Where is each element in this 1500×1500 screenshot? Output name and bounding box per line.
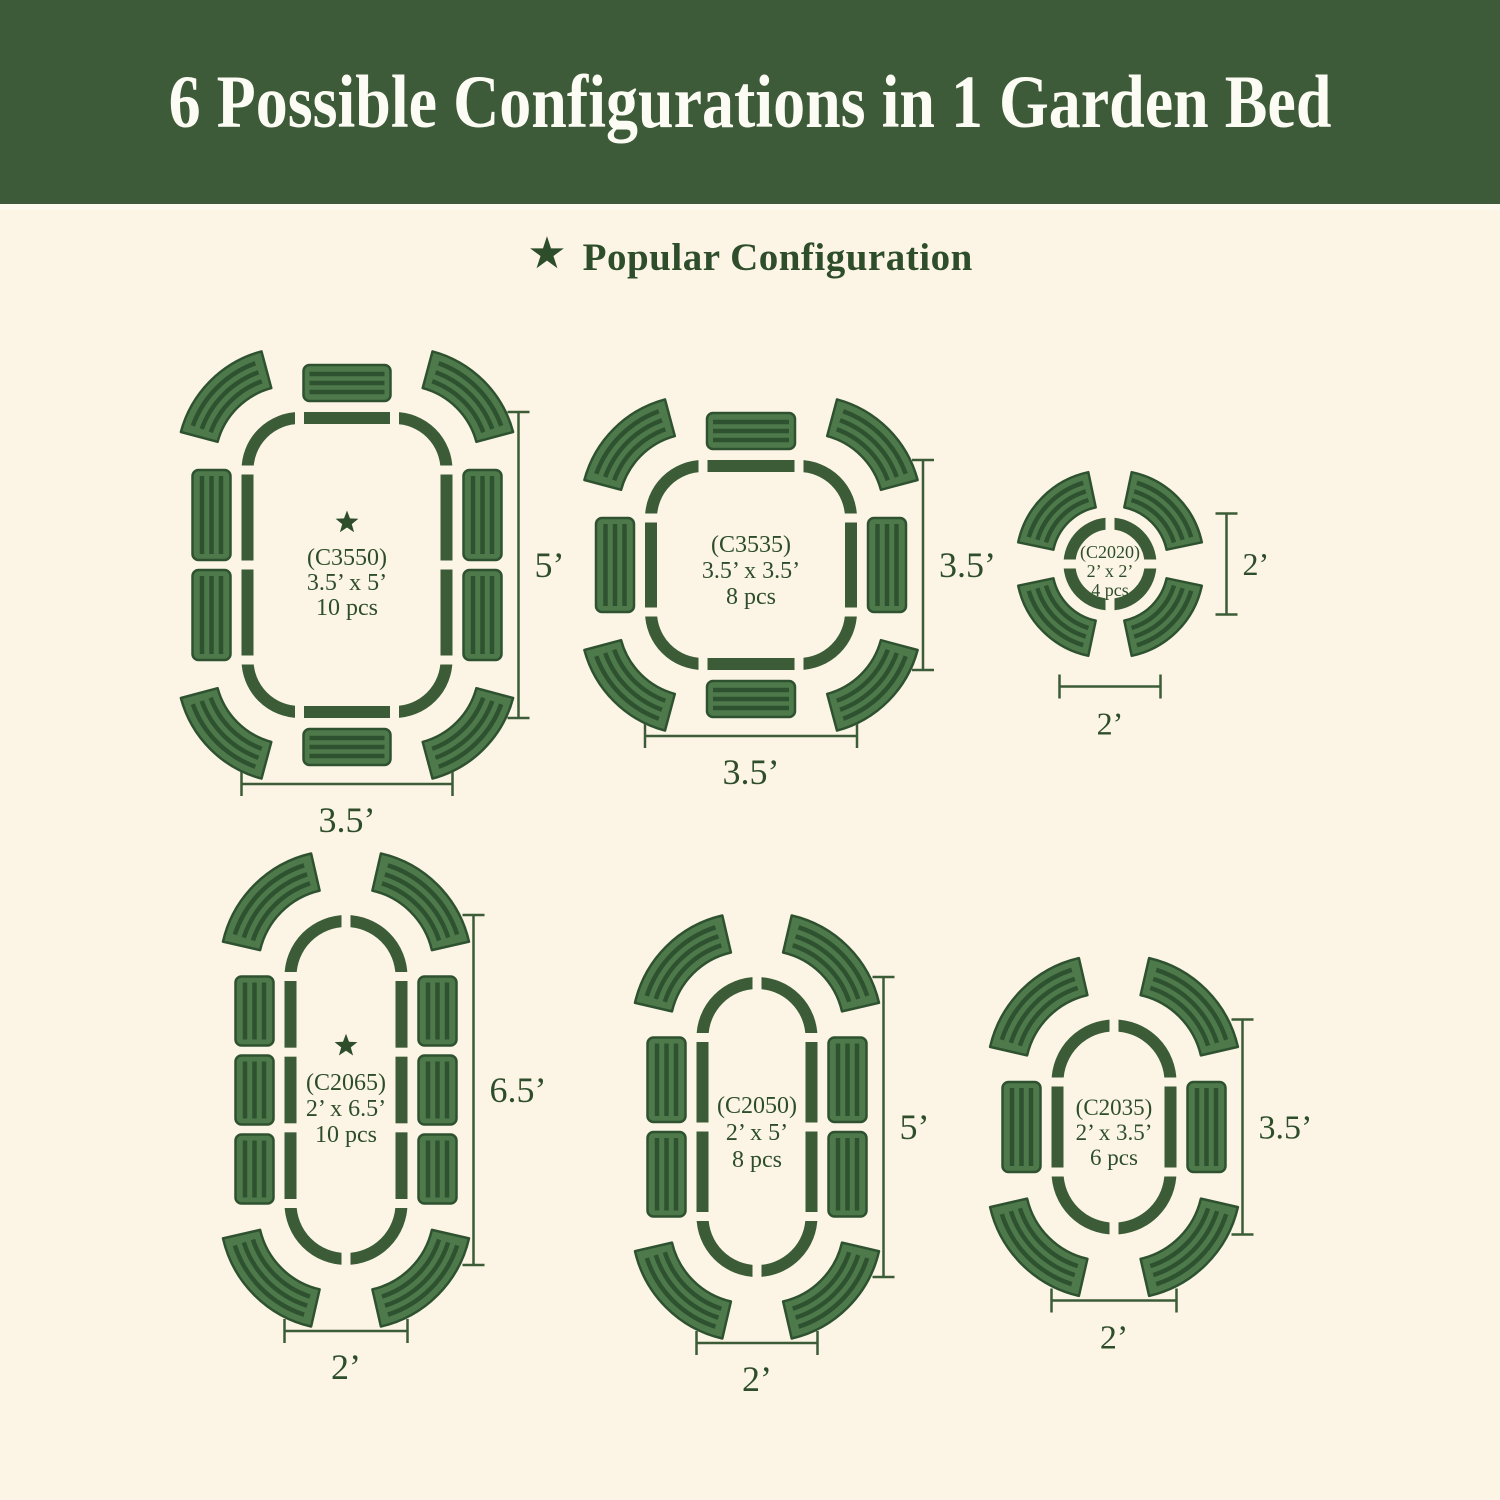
piece-joint-gap — [690, 1033, 716, 1042]
config-label: (C2050)2’ x 5’8 pcs — [717, 1093, 797, 1173]
piece-joint-gap — [434, 466, 460, 475]
piece-joint-gap — [295, 699, 304, 725]
piece-joint-gap — [1057, 560, 1083, 569]
width-dimension-label: 2’ — [742, 1359, 772, 1399]
piece-joint-gap — [235, 466, 261, 475]
config-pieces-count: 8 pcs — [732, 1147, 782, 1173]
width-dimension-label: 3.5’ — [319, 800, 376, 840]
piece-joint-gap — [699, 651, 708, 677]
piece-joint-gap — [799, 1212, 825, 1221]
curved-bed-piece — [584, 640, 674, 730]
width-dimension-label: 2’ — [1097, 706, 1124, 742]
piece-joint-gap — [799, 1123, 825, 1132]
piece-joint-gap — [1138, 560, 1164, 569]
config-size: 2’ x 3.5’ — [1076, 1120, 1153, 1145]
popular-star-icon — [336, 511, 359, 533]
config-pieces-count: 10 pcs — [315, 1122, 377, 1148]
piece-joint-gap — [699, 453, 708, 479]
config-label: (C3550)3.5’ x 5’10 pcs — [307, 511, 387, 622]
piece-joint-gap — [795, 453, 804, 479]
piece-joint-gap — [753, 1258, 762, 1284]
config-size: 2’ x 2’ — [1087, 561, 1134, 581]
piece-joint-gap — [638, 514, 664, 523]
config-pieces-count: 10 pcs — [316, 595, 378, 621]
piece-joint-gap — [235, 561, 261, 570]
piece-joint-gap — [690, 1123, 716, 1132]
piece-joint-gap — [1110, 1013, 1119, 1039]
piece-joint-gap — [434, 561, 460, 570]
infographic-page: 6 Possible Configurations in 1 Garden Be… — [0, 0, 1500, 1500]
config-pieces-count: 8 pcs — [726, 584, 776, 610]
dimension-annotations: 6.5’2’ — [285, 915, 547, 1387]
piece-joint-gap — [1158, 1168, 1184, 1177]
configuration-C2035: (C2035)2’ x 3.5’6 pcs3.5’2’ — [990, 958, 1312, 1356]
piece-joint-gap — [278, 1199, 304, 1208]
piece-joint-gap — [1045, 1078, 1071, 1087]
configuration-C3535: (C3535)3.5’ x 3.5’8 pcs3.5’3.5’ — [584, 399, 996, 792]
piece-joint-gap — [1106, 511, 1115, 537]
config-code: (C2065) — [306, 1070, 386, 1096]
piece-joint-gap — [389, 1048, 415, 1057]
curved-bed-piece — [584, 399, 674, 489]
config-code: (C3550) — [307, 545, 387, 571]
config-code: (C2020) — [1080, 542, 1140, 563]
configurations-figure: (C3550)3.5’ x 5’10 pcs5’3.5’(C3535)3.5’ … — [0, 0, 1500, 1500]
config-label: (C3535)3.5’ x 3.5’8 pcs — [702, 532, 800, 610]
height-dimension-label: 3.5’ — [939, 545, 996, 585]
piece-joint-gap — [838, 514, 864, 523]
config-label: (C2035)2’ x 3.5’6 pcs — [1076, 1095, 1153, 1170]
piece-joint-gap — [1158, 1078, 1184, 1087]
height-dimension-label: 2’ — [1243, 546, 1270, 582]
configuration-C2065: (C2065)2’ x 6.5’10 pcs6.5’2’ — [223, 854, 547, 1388]
config-label: (C2020)2’ x 2’4 pcs — [1080, 542, 1140, 600]
piece-joint-gap — [342, 908, 351, 934]
piece-joint-gap — [838, 608, 864, 617]
piece-joint-gap — [389, 1123, 415, 1132]
curved-bed-piece — [181, 351, 271, 441]
height-dimension-label: 5’ — [535, 545, 565, 585]
configuration-C2050: (C2050)2’ x 5’8 pcs5’2’ — [635, 916, 930, 1400]
piece-joint-gap — [753, 970, 762, 996]
piece-joint-gap — [389, 972, 415, 981]
height-dimension-label: 6.5’ — [490, 1070, 547, 1110]
configuration-C3550: (C3550)3.5’ x 5’10 pcs5’3.5’ — [181, 351, 565, 840]
curved-bed-piece — [827, 399, 917, 489]
config-pieces-count: 6 pcs — [1090, 1145, 1138, 1170]
piece-joint-gap — [799, 1033, 825, 1042]
config-code: (C2050) — [717, 1093, 797, 1119]
height-dimension-label: 3.5’ — [1259, 1110, 1313, 1147]
curved-bed-piece — [827, 640, 917, 730]
popular-star-icon — [335, 1034, 358, 1056]
curved-bed-piece — [423, 688, 513, 778]
piece-joint-gap — [690, 1212, 716, 1221]
piece-joint-gap — [342, 1246, 351, 1272]
piece-joint-gap — [390, 405, 399, 431]
config-size: 3.5’ x 5’ — [307, 570, 387, 596]
piece-joint-gap — [235, 656, 261, 665]
width-dimension-label: 2’ — [331, 1347, 361, 1387]
height-dimension-label: 5’ — [900, 1107, 930, 1147]
piece-joint-gap — [795, 651, 804, 677]
config-size: 3.5’ x 3.5’ — [702, 558, 800, 584]
piece-joint-gap — [1045, 1168, 1071, 1177]
piece-joint-gap — [390, 699, 399, 725]
config-code: (C2035) — [1076, 1095, 1153, 1120]
config-size: 2’ x 5’ — [726, 1120, 788, 1146]
dimension-annotations: 5’3.5’ — [242, 412, 565, 840]
piece-joint-gap — [278, 1123, 304, 1132]
config-code: (C3535) — [711, 532, 791, 558]
curved-bed-piece — [181, 688, 271, 778]
configuration-C2020: (C2020)2’ x 2’4 pcs2’2’ — [1018, 472, 1269, 741]
config-size: 2’ x 6.5’ — [306, 1096, 386, 1122]
dimension-annotations: 3.5’3.5’ — [645, 460, 996, 792]
curved-bed-piece — [423, 351, 513, 441]
piece-joint-gap — [278, 1048, 304, 1057]
piece-joint-gap — [389, 1199, 415, 1208]
piece-joint-gap — [638, 608, 664, 617]
width-dimension-label: 3.5’ — [723, 752, 780, 792]
piece-joint-gap — [295, 405, 304, 431]
config-pieces-count: 4 pcs — [1091, 580, 1129, 600]
width-dimension-label: 2’ — [1100, 1320, 1128, 1357]
config-label: (C2065)2’ x 6.5’10 pcs — [306, 1034, 386, 1148]
dimension-annotations: 3.5’2’ — [1052, 1020, 1313, 1357]
piece-joint-gap — [278, 972, 304, 981]
piece-joint-gap — [434, 656, 460, 665]
piece-joint-gap — [1110, 1216, 1119, 1242]
